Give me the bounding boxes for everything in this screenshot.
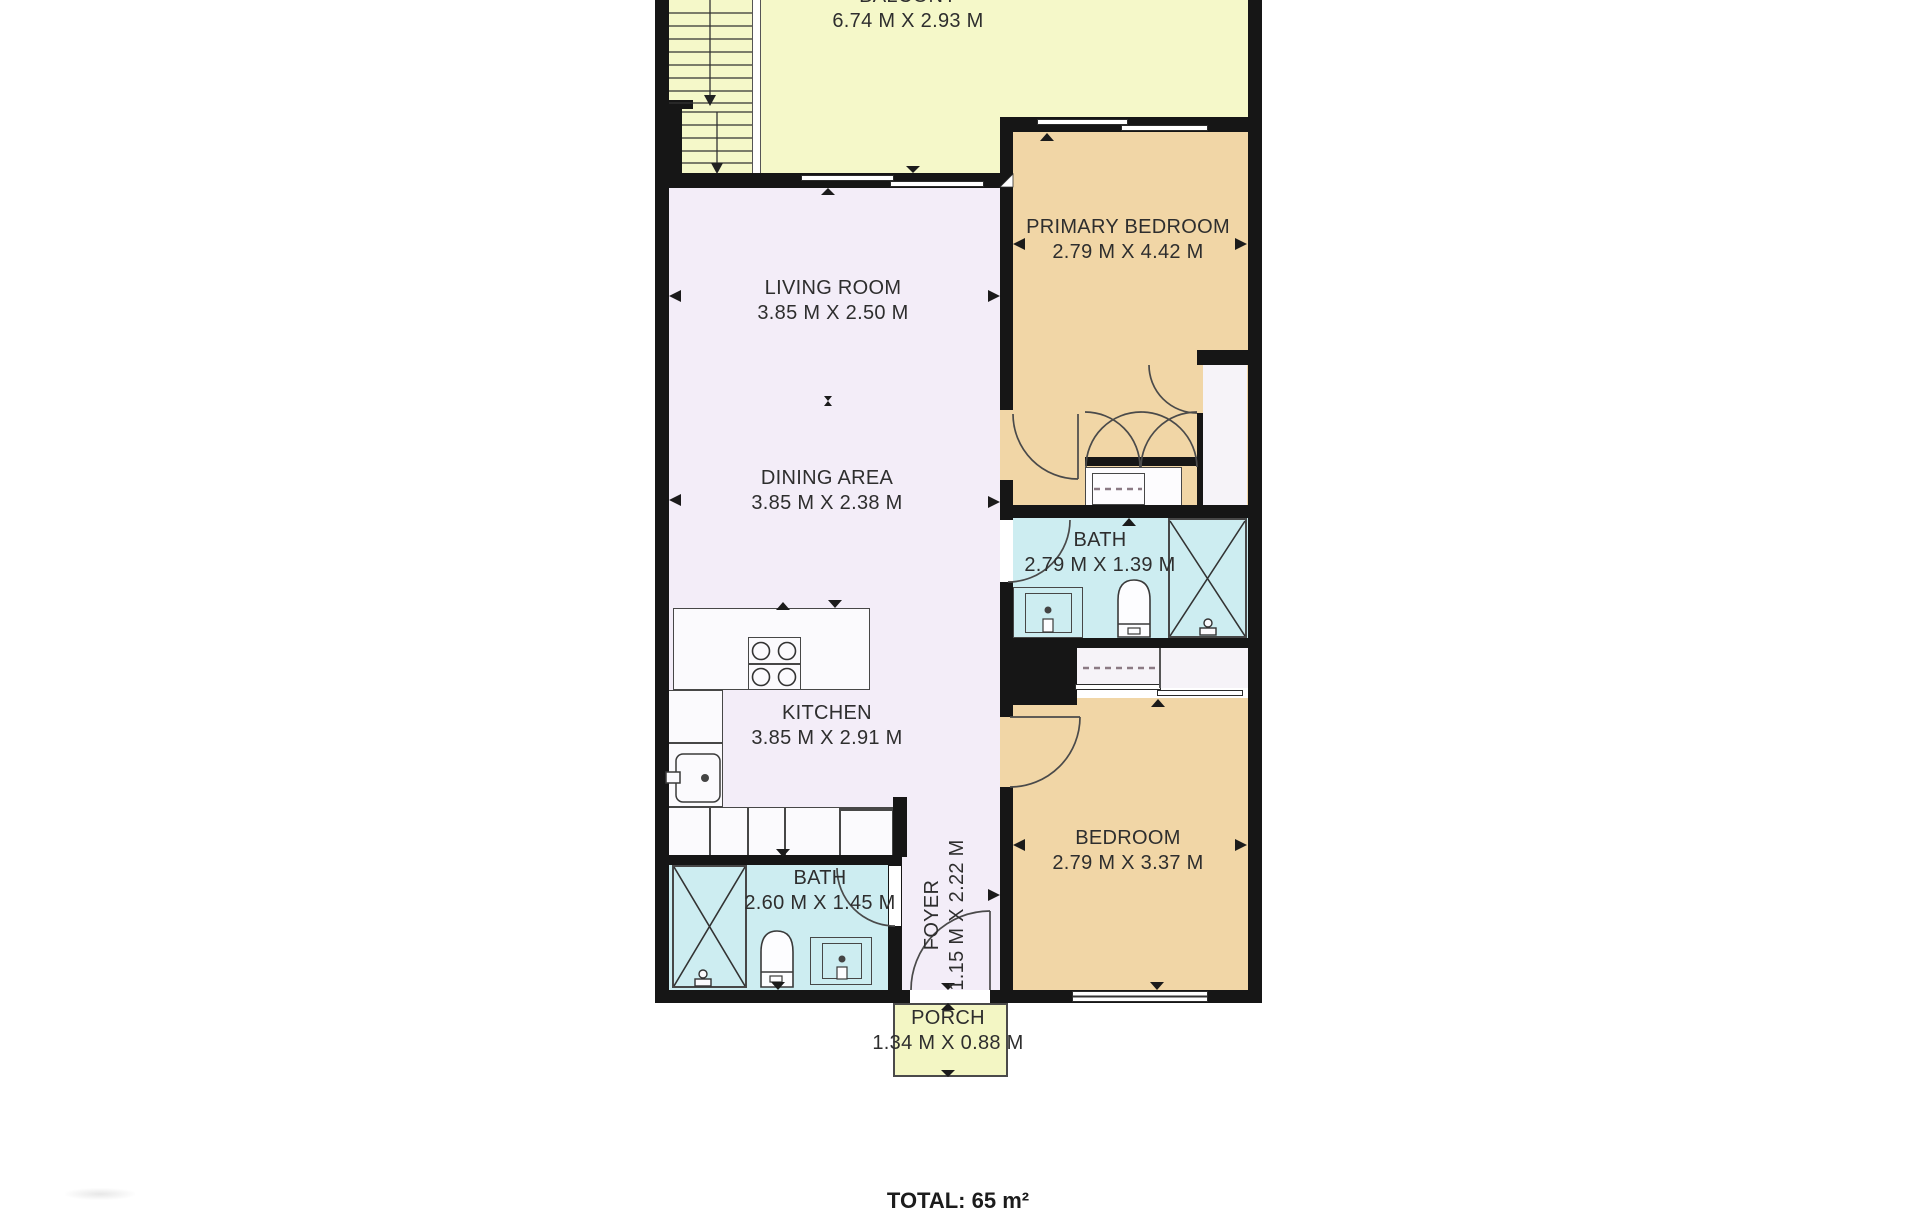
room-dims: 3.85 M X 2.38 M	[751, 491, 902, 516]
room-name: PORCH	[872, 1006, 1023, 1031]
room-label-main-bath: BATH 2.60 M X 1.45 M	[744, 866, 895, 916]
stove-bottom-box	[748, 664, 801, 690]
primary-bedroom-door-gap	[1000, 410, 1013, 480]
room-label-dining-area: DINING AREA 3.85 M X 2.38 M	[751, 466, 902, 516]
balcony-slider-panel-2	[890, 181, 984, 187]
wardrobe-box	[1092, 473, 1145, 505]
wall-closet-top-bar	[1085, 457, 1197, 466]
walkin-door-gap	[1197, 365, 1203, 413]
wall-kitchen-foyer-stub	[893, 797, 907, 857]
cutoff-watermark	[65, 1188, 135, 1200]
main-shower	[672, 865, 747, 988]
room-label-bedroom: BEDROOM 2.79 M X 3.37 M	[1052, 826, 1203, 876]
room-dims: 6.74 M X 2.93 M	[832, 9, 983, 34]
wall-main-bath-top	[655, 855, 902, 865]
front-door-gap	[910, 990, 990, 1003]
floor-plan: BALCONY 6.74 M X 2.93 M LIVING ROOM 3.85…	[0, 0, 1920, 1200]
room-dims: 1.34 M X 0.88 M	[872, 1031, 1023, 1056]
room-dims: 2.79 M X 1.39 M	[1024, 553, 1175, 578]
wall-primary-bedroom-bottom	[1000, 505, 1248, 518]
stove-top-box	[748, 637, 801, 664]
room-name: BATH	[744, 866, 895, 891]
wall-divider-d	[1000, 705, 1013, 717]
primary-window-panel-2	[1121, 125, 1208, 131]
room-name: FOYER	[920, 839, 945, 990]
wall-divider-e	[1000, 787, 1013, 990]
room-name: BALCONY	[832, 0, 983, 9]
wall-primary-bath-bottom	[1008, 638, 1248, 648]
room-name: BEDROOM	[1052, 826, 1203, 851]
walkin-closet-floor	[1203, 365, 1247, 512]
kitchen-sink-cabinet	[668, 743, 723, 807]
room-label-foyer: FOYER 1.15 M X 2.22 M	[920, 839, 970, 990]
primary-window-panel-1	[1037, 119, 1128, 125]
room-name: LIVING ROOM	[757, 276, 908, 301]
room-dims: 2.60 M X 1.45 M	[744, 891, 895, 916]
room-dims: 1.15 M X 2.22 M	[945, 839, 970, 990]
dishwasher	[840, 807, 893, 857]
kitchen-counter-left	[668, 690, 723, 743]
wall-stair-side	[655, 100, 682, 174]
bedroom-window	[1072, 991, 1208, 1002]
wall-divider-a	[1000, 117, 1013, 410]
total-area-label: TOTAL: 65 m²	[887, 1188, 1029, 1214]
room-label-primary-bath: BATH 2.79 M X 1.39 M	[1024, 528, 1175, 578]
room-dims: 3.85 M X 2.91 M	[751, 726, 902, 751]
wall-stair-notch	[682, 100, 693, 109]
kitchen-counter-seg4	[785, 807, 840, 857]
balcony-slider-panel-1	[801, 175, 894, 181]
shaft-block	[1000, 643, 1077, 705]
room-name: DINING AREA	[751, 466, 902, 491]
kitchen-counter-seg2	[710, 807, 748, 857]
room-label-living-room: LIVING ROOM 3.85 M X 2.50 M	[757, 276, 908, 326]
balcony-floor-right	[1013, 0, 1248, 132]
room-dims: 3.85 M X 2.50 M	[757, 301, 908, 326]
room-name: PRIMARY BEDROOM	[1026, 215, 1230, 240]
room-dims: 2.79 M X 4.42 M	[1026, 240, 1230, 265]
room-label-porch: PORCH 1.34 M X 0.88 M	[872, 1006, 1023, 1056]
stair-railing	[752, 0, 761, 174]
primary-shower	[1168, 518, 1247, 638]
primary-bath-basin	[1025, 593, 1072, 633]
closet-strip-floor	[1077, 648, 1248, 688]
room-label-primary-bedroom: PRIMARY BEDROOM 2.79 M X 4.42 M	[1026, 215, 1230, 265]
closet-slider-panel-2	[1157, 690, 1243, 696]
kitchen-counter-seg3	[748, 807, 785, 857]
bedroom-door-gap	[1000, 717, 1013, 787]
main-bath-basin	[822, 943, 862, 979]
room-name: BATH	[1024, 528, 1175, 553]
closet-slider-panel-1	[1075, 684, 1161, 690]
wall-walkin-left	[1197, 413, 1203, 512]
room-dims: 2.79 M X 3.37 M	[1052, 851, 1203, 876]
primary-bath-door-gap	[1000, 520, 1013, 582]
room-label-balcony: BALCONY 6.74 M X 2.93 M	[832, 0, 983, 34]
wall-divider-c	[1000, 582, 1013, 643]
room-name: KITCHEN	[751, 701, 902, 726]
wall-outer-right	[1248, 0, 1262, 1003]
wall-walkin-top	[1197, 350, 1262, 365]
room-label-kitchen: KITCHEN 3.85 M X 2.91 M	[751, 701, 902, 751]
kitchen-counter-seg1	[668, 807, 710, 857]
